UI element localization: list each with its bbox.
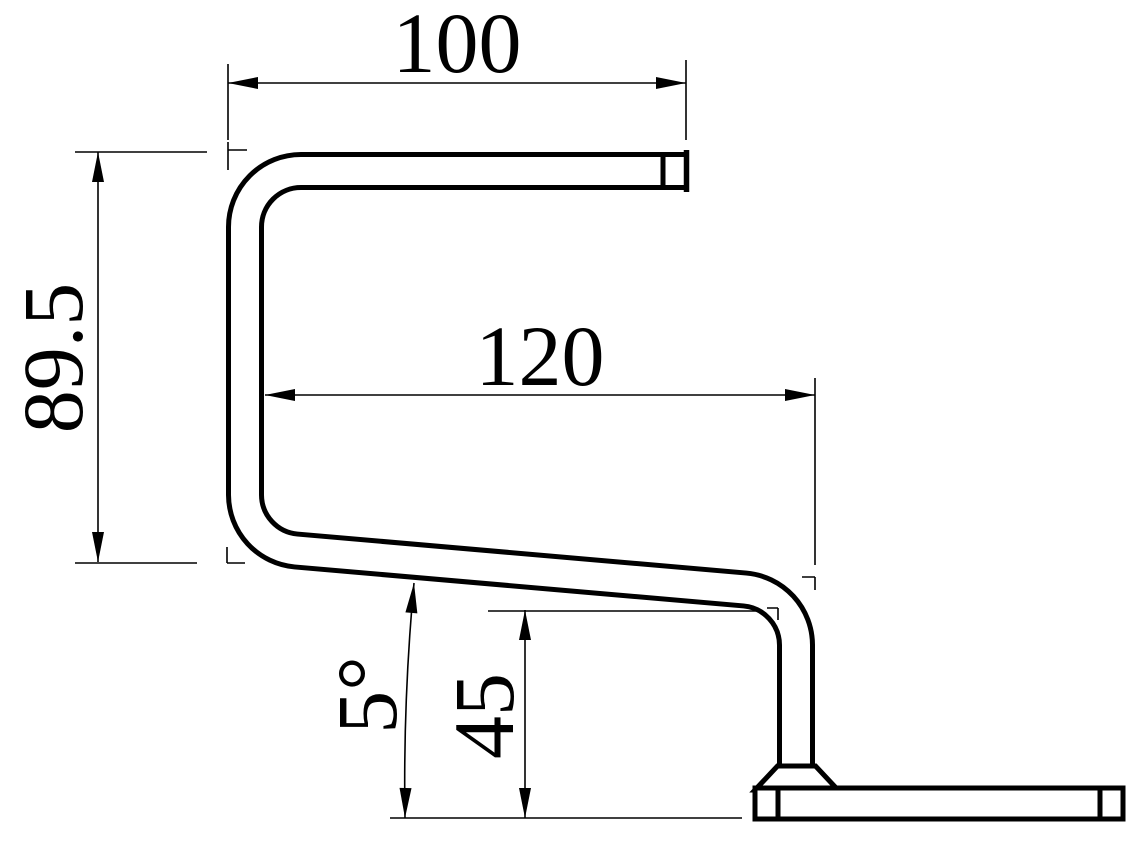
technical-drawing-canvas: 100 120 89.5 5° 45: [0, 0, 1146, 844]
engineering-drawing-page: 100 120 89.5 5° 45: [0, 0, 1146, 844]
arrow-100-left: [228, 77, 258, 89]
arrow-89-top: [92, 152, 104, 182]
dim-label-top-width: 100: [393, 0, 522, 91]
base-plate: [755, 788, 1123, 819]
corner-mark-right-upper: [802, 577, 815, 590]
arrow-120-left: [265, 389, 295, 401]
corner-mark-bottom-left: [227, 547, 245, 563]
arrow-45-top: [519, 610, 531, 640]
dim-label-angle: 5°: [319, 656, 415, 733]
corner-mark-top-left: [228, 142, 247, 170]
dim-label-mid-width: 120: [476, 308, 605, 404]
arrow-89-bottom: [92, 532, 104, 562]
arrow-45-bottom: [519, 788, 531, 818]
dim-label-right-height: 45: [436, 673, 532, 759]
dimension-labels: 100 120 89.5 5° 45: [5, 0, 605, 759]
arrow-120-right: [785, 389, 815, 401]
dim-label-left-height: 89.5: [5, 283, 101, 434]
arrow-angle-bottom: [399, 788, 412, 818]
arrow-angle-top: [405, 582, 420, 613]
arrow-100-right: [656, 77, 686, 89]
